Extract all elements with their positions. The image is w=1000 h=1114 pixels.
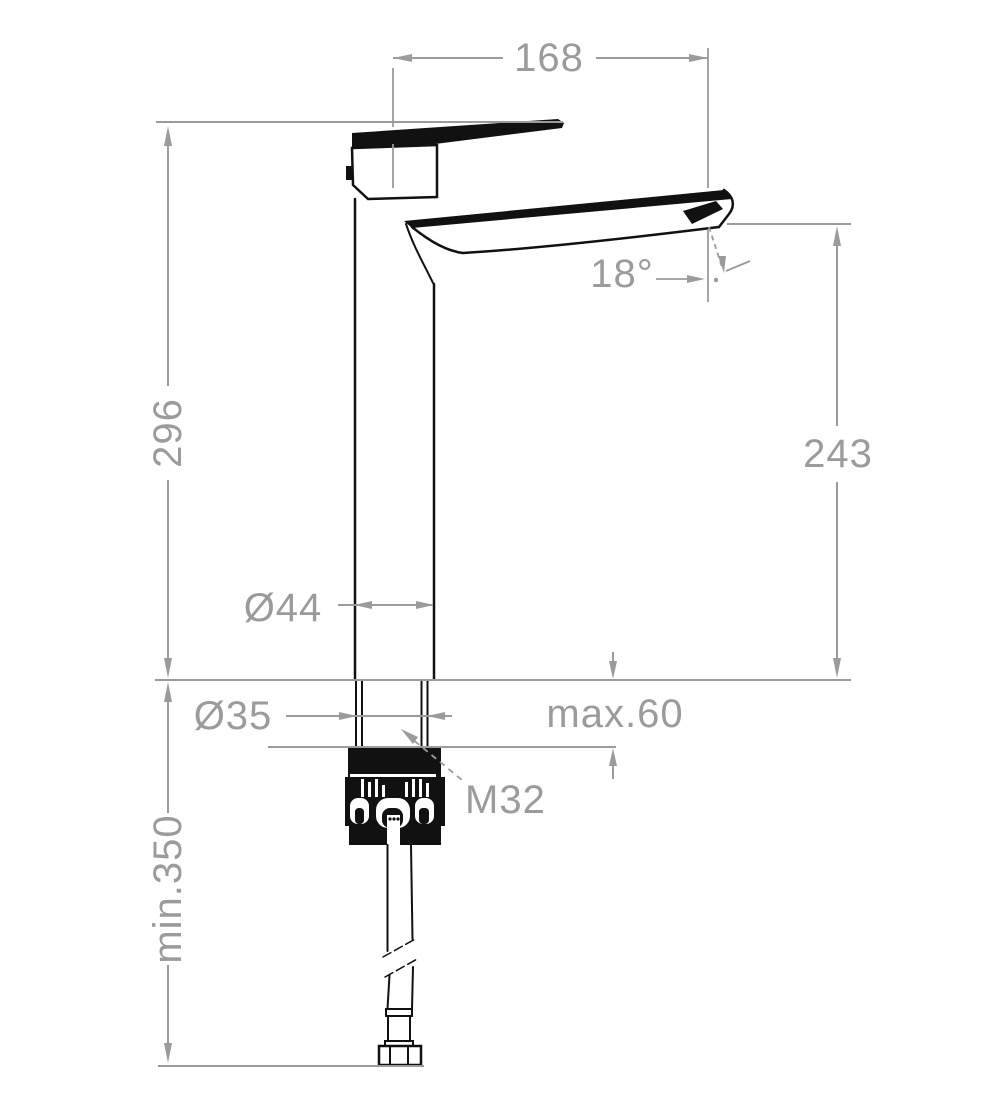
- dim-label-body-diameter: Ø44: [244, 586, 323, 630]
- faucet-outline: [345, 119, 733, 1065]
- dim-label-spout-reach: 168: [514, 36, 584, 80]
- hose-collar: [386, 1009, 412, 1016]
- dim-label-spout-angle: 18°: [590, 252, 654, 296]
- spout-aerator: [683, 201, 723, 224]
- dim-spout-reach: 168: [393, 36, 708, 302]
- dim-spout-angle: 18°: [590, 227, 750, 296]
- dim-label-spout-height: 243: [803, 432, 873, 476]
- spout-top-edge: [404, 190, 732, 228]
- spout-bottom-edge: [412, 227, 719, 253]
- handle-lever: [352, 119, 564, 148]
- hose-tube-end: [388, 1016, 410, 1041]
- handle-notch: [346, 166, 353, 180]
- dim-hose-clearance: min.350: [146, 682, 424, 1066]
- dim-label-overall-height: 296: [146, 398, 190, 468]
- dim-shank-diameter: Ø35: [194, 694, 452, 738]
- technical-drawing-sheet: 168 296 243 18° Ø44: [0, 0, 1000, 1114]
- dim-label-thread-size: M32: [465, 778, 546, 822]
- mounting-cartridge: [345, 747, 445, 845]
- hose-nut: [379, 1046, 421, 1065]
- dim-label-hose-clearance: min.350: [146, 814, 190, 963]
- dim-label-shank-diameter: Ø35: [194, 694, 273, 738]
- dim-body-diameter: Ø44: [244, 586, 434, 630]
- supply-hose: [379, 845, 421, 1065]
- technical-drawing-canvas: 168 296 243 18° Ø44: [0, 0, 1000, 1114]
- dim-label-deck-thickness: max.60: [546, 692, 683, 736]
- dim-spout-height: 243: [727, 224, 873, 678]
- handle-body: [352, 145, 437, 199]
